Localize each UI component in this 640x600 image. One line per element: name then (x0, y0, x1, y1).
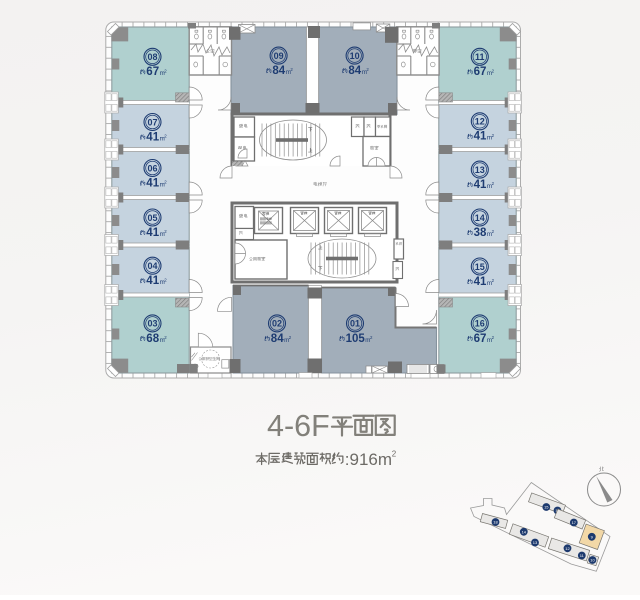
svg-text:41: 41 (146, 275, 159, 287)
svg-text:12: 12 (565, 546, 570, 551)
svg-text:17: 17 (572, 520, 577, 525)
svg-text:68: 68 (146, 333, 159, 345)
svg-text:41: 41 (474, 276, 487, 288)
svg-text:05: 05 (147, 213, 157, 223)
svg-text:84: 84 (271, 333, 284, 345)
svg-text:10: 10 (350, 51, 360, 61)
svg-text:2: 2 (392, 450, 397, 459)
svg-text:08: 08 (147, 52, 157, 62)
svg-text:4-6F: 4-6F (267, 409, 330, 443)
svg-text:14: 14 (475, 213, 485, 223)
svg-text:10: 10 (590, 558, 595, 563)
svg-text:04: 04 (147, 261, 157, 271)
svg-text:41: 41 (474, 131, 487, 143)
svg-text:02: 02 (272, 319, 282, 329)
svg-text:15: 15 (544, 505, 549, 510)
svg-text:06: 06 (147, 163, 157, 173)
svg-text:18: 18 (493, 520, 498, 525)
svg-text:12: 12 (475, 117, 485, 127)
svg-text:07: 07 (147, 117, 157, 127)
svg-text:09: 09 (274, 51, 284, 61)
svg-text:105: 105 (346, 333, 366, 345)
svg-text:13: 13 (533, 540, 538, 545)
svg-text:01: 01 (350, 319, 360, 329)
svg-text:38: 38 (474, 227, 487, 239)
svg-text:41: 41 (474, 179, 487, 191)
svg-text:16: 16 (475, 319, 485, 329)
svg-text:84: 84 (272, 65, 285, 77)
svg-text:14: 14 (522, 529, 527, 534)
svg-text:13: 13 (475, 165, 485, 175)
svg-text:41: 41 (146, 177, 159, 189)
svg-text:84: 84 (348, 65, 361, 77)
svg-text:03: 03 (147, 319, 157, 329)
svg-text:11: 11 (475, 52, 485, 62)
svg-text:41: 41 (146, 227, 159, 239)
svg-text:41: 41 (146, 131, 159, 143)
svg-text:67: 67 (474, 333, 487, 345)
svg-text::916m: :916m (345, 450, 392, 469)
svg-text:67: 67 (474, 66, 487, 78)
svg-text:67: 67 (146, 66, 159, 78)
svg-text:15: 15 (475, 262, 485, 272)
